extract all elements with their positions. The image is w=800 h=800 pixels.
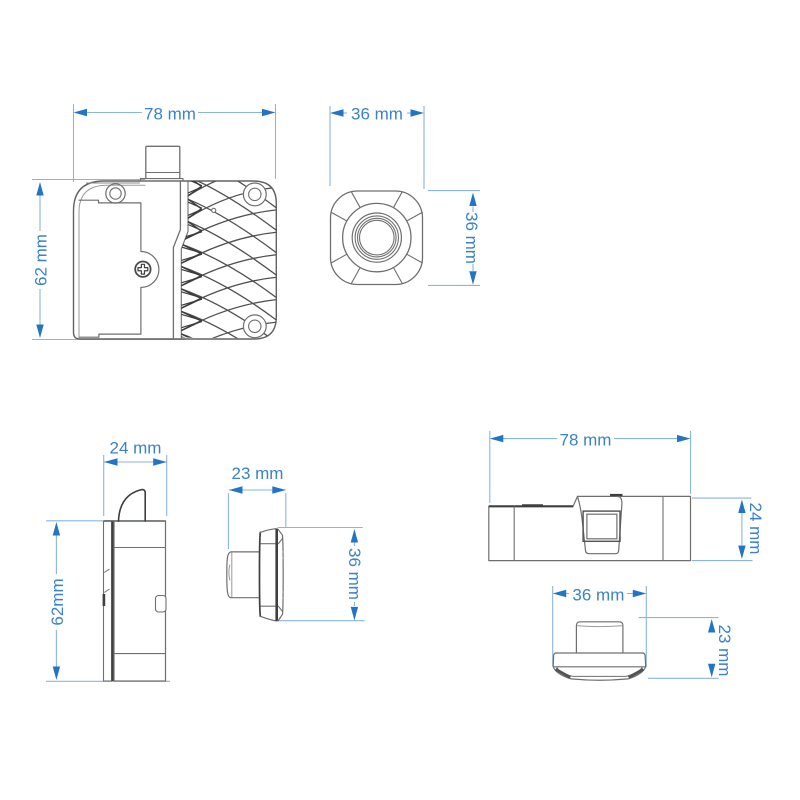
- svg-text:78 mm: 78 mm: [560, 431, 612, 450]
- svg-text:36 mm: 36 mm: [345, 548, 364, 600]
- svg-text:23 mm: 23 mm: [715, 625, 734, 677]
- svg-text:36 mm: 36 mm: [462, 212, 481, 264]
- svg-text:62 mm: 62 mm: [32, 234, 51, 286]
- svg-text:62mm: 62mm: [48, 578, 67, 625]
- svg-text:36 mm: 36 mm: [572, 586, 624, 605]
- svg-text:24 mm: 24 mm: [746, 503, 765, 555]
- svg-text:24 mm: 24 mm: [110, 439, 162, 458]
- svg-text:78 mm: 78 mm: [144, 105, 196, 124]
- svg-text:36 mm: 36 mm: [351, 105, 403, 124]
- svg-text:23 mm: 23 mm: [232, 464, 284, 483]
